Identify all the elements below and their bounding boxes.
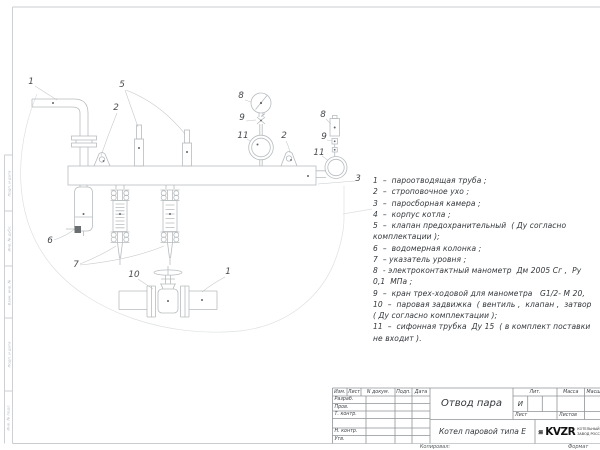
manometer-side-view bbox=[316, 116, 347, 179]
safety-valve-1 bbox=[135, 125, 144, 166]
margin-column-label: Инв. № подл. bbox=[5, 391, 13, 443]
copied-label: Копировал: bbox=[400, 444, 470, 450]
parts-list: 1 – пароотводящая труба ;2 – строповочно… bbox=[373, 175, 600, 344]
margin-column-label: Взам. инв. № bbox=[5, 266, 13, 318]
tb-row-nkontr: Н. контр. bbox=[333, 428, 366, 436]
tb-col-podp: Подп. bbox=[395, 388, 412, 396]
callout-9: 9 bbox=[239, 113, 245, 123]
boiler-coil-icon bbox=[538, 426, 543, 438]
parts-list-line: 3 – паросборная камера ; bbox=[373, 198, 600, 209]
parts-list-line: 11 – сифонная трубка Ду 15 ( в комплект … bbox=[373, 321, 600, 332]
document-subtitle: Котел паровой типа Е bbox=[430, 420, 535, 444]
level-indicator-2 bbox=[161, 185, 180, 265]
callout-1: 1 bbox=[28, 77, 34, 87]
parts-list-line: ( Ду согласно комплектации ); bbox=[373, 310, 600, 321]
logo-caption: КОТЕЛЬНЫЙ ЗАВОД РОССИИ bbox=[577, 427, 600, 436]
callout-1: 1 bbox=[225, 267, 231, 277]
parts-list-line: 0,1 МПа ; bbox=[373, 276, 600, 287]
margin-column-label: Подп. и дата bbox=[5, 318, 13, 391]
tb-row-utv: Утв. bbox=[333, 436, 366, 444]
leader-lines bbox=[35, 86, 355, 292]
tb-sheet-label: Лист bbox=[513, 412, 557, 420]
company-logo: KVZR КОТЕЛЬНЫЙ ЗАВОД РОССИИ bbox=[535, 420, 600, 444]
tb-col-list: Лист bbox=[347, 388, 361, 396]
tb-col-doc: N докум. bbox=[361, 388, 395, 396]
callout-10: 10 bbox=[128, 270, 140, 280]
lifting-eye-left bbox=[94, 153, 110, 167]
lifting-eye-right bbox=[281, 152, 297, 167]
callout-8: 8 bbox=[320, 110, 326, 120]
boiler-shell-outline bbox=[21, 94, 372, 332]
tb-col-izm: Изм. bbox=[333, 388, 348, 396]
level-indicator-1 bbox=[111, 185, 130, 265]
callout-7: 7 bbox=[73, 260, 79, 270]
callout-3: 3 bbox=[355, 174, 361, 184]
parts-list-line: 10 – паровая задвижка ( вентиль , клапан… bbox=[373, 299, 600, 310]
parts-list-line: 5 – клапан предохранительный ( Ду соглас… bbox=[373, 220, 600, 231]
format-label: Формат bbox=[568, 444, 600, 450]
tb-scale-label: Масштаб bbox=[585, 388, 600, 396]
callout-numbers: 152891128911367101 bbox=[28, 77, 361, 280]
logo-text: KVZR bbox=[545, 426, 575, 438]
steam-chamber bbox=[68, 166, 316, 185]
tb-row-prov: Пров. bbox=[333, 404, 366, 412]
parts-list-line: комплектации ); bbox=[373, 231, 600, 242]
margin-column-label: Инв. № дубл. bbox=[5, 211, 13, 266]
tb-lit-value: И bbox=[513, 396, 528, 412]
callout-11: 11 bbox=[313, 148, 324, 158]
document-title: Отвод пара bbox=[430, 388, 513, 420]
parts-list-line: 7 – указатель уровня ; bbox=[373, 254, 600, 265]
callout-9: 9 bbox=[321, 132, 327, 142]
drawing-sheet: { "sheet": { "copied_label": "Копировал:… bbox=[0, 0, 600, 450]
parts-list-line: 6 – водомерная колонка ; bbox=[373, 243, 600, 254]
water-gauge-column bbox=[66, 185, 93, 236]
parts-list-line: 9 – кран трех-ходовой для манометра G1/2… bbox=[373, 288, 600, 299]
parts-list-line: 2 – строповочное ухо ; bbox=[373, 186, 600, 197]
callout-2: 2 bbox=[113, 103, 119, 113]
callout-6: 6 bbox=[47, 236, 53, 246]
tb-col-data: Дата bbox=[412, 388, 430, 396]
tb-row-tkontr: Т. контр. bbox=[333, 411, 366, 419]
reference-dots bbox=[52, 102, 336, 302]
callout-11: 11 bbox=[237, 131, 248, 141]
steam-outlet-pipe bbox=[32, 99, 97, 166]
parts-list-line: 8 - электроконтактный манометр Дм 2005 С… bbox=[373, 265, 600, 276]
callout-2: 2 bbox=[281, 131, 287, 141]
margin-column-label: Подп. и дата bbox=[5, 155, 13, 211]
parts-list-line: не входит ). bbox=[373, 333, 600, 344]
parts-list-line: 4 – корпус котла ; bbox=[373, 209, 600, 220]
tb-mass-label: Масса bbox=[557, 388, 585, 396]
safety-valve-2 bbox=[183, 130, 192, 166]
tb-row-razrab: Разраб. bbox=[333, 396, 366, 404]
callout-8: 8 bbox=[238, 91, 244, 101]
tb-sheets-label: Листов bbox=[557, 412, 585, 420]
parts-list-line: 1 – пароотводящая труба ; bbox=[373, 175, 600, 186]
callout-5: 5 bbox=[119, 80, 125, 90]
tb-lit-label: Лит. bbox=[513, 388, 557, 396]
